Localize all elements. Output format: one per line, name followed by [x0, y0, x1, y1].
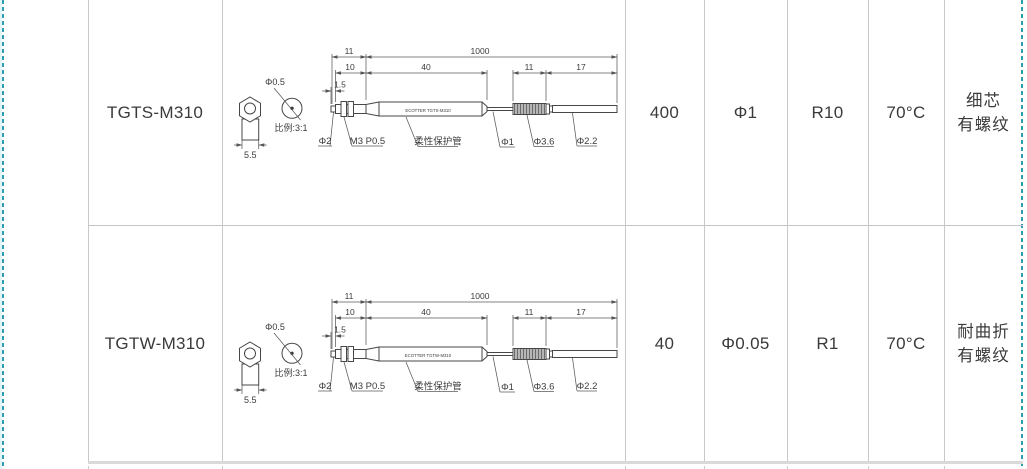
technical-drawing-tgts-m310: 11 1000 10 40 11 17 1.5 5.5 Φ0.5 比例:3:1 …: [222, 40, 625, 175]
svg-text:Φ3.6: Φ3.6: [534, 382, 555, 393]
svg-text:Φ2: Φ2: [319, 136, 332, 147]
svg-text:Φ1: Φ1: [501, 382, 514, 393]
svg-text:11: 11: [345, 291, 354, 301]
svg-text:11: 11: [525, 307, 534, 317]
svg-text:11: 11: [525, 62, 534, 72]
svg-text:11: 11: [345, 46, 354, 56]
svg-text:M3 P0.5: M3 P0.5: [350, 381, 385, 392]
spec-value: R1: [787, 225, 868, 462]
svg-text:17: 17: [576, 307, 586, 317]
spec-note-line: 有螺纹: [957, 344, 1010, 368]
spec-note-line: 细芯: [966, 89, 1001, 113]
svg-text:Φ2.2: Φ2.2: [577, 381, 598, 392]
svg-text:柔性保护管: 柔性保护管: [414, 381, 462, 393]
svg-text:5.5: 5.5: [244, 395, 257, 405]
model-name-tgts-m310: TGTS-M310: [88, 0, 222, 225]
spec-value: Φ1: [704, 0, 787, 225]
svg-text:40: 40: [421, 62, 431, 72]
spec-value: 70°C: [868, 225, 944, 462]
spec-value: 40: [625, 225, 704, 462]
svg-text:10: 10: [345, 62, 355, 72]
model-name-tgtw-m310: TGTW-M310: [88, 225, 222, 462]
svg-text:Φ0.5: Φ0.5: [265, 322, 285, 332]
spec-note-line: 耐曲折: [957, 320, 1010, 344]
svg-text:1.5: 1.5: [334, 80, 346, 90]
spec-note-line: 有螺纹: [957, 113, 1010, 137]
spec-value: 70°C: [868, 0, 944, 225]
spec-note: 耐曲折 有螺纹: [944, 225, 1023, 462]
svg-text:Φ3.6: Φ3.6: [534, 137, 555, 148]
svg-text:1000: 1000: [471, 46, 490, 56]
svg-text:17: 17: [576, 62, 586, 72]
spec-value: R10: [787, 0, 868, 225]
catalog-page: TGTS-M310 11 1000 10 40 11 17 1.5 5.5 Φ0…: [0, 0, 1027, 469]
left-page-guide-dashed: [2, 0, 4, 469]
svg-text:5.5: 5.5: [244, 150, 257, 160]
spec-value: 400: [625, 0, 704, 225]
svg-text:Φ1: Φ1: [501, 137, 514, 148]
svg-text:M3 P0.5: M3 P0.5: [350, 136, 385, 147]
svg-text:40: 40: [421, 307, 431, 317]
svg-text:1000: 1000: [471, 291, 490, 301]
svg-text:比例:3:1: 比例:3:1: [274, 367, 307, 378]
svg-text:1.5: 1.5: [334, 325, 346, 335]
svg-text:ECOTTER TGTW-M310: ECOTTER TGTW-M310: [405, 353, 452, 358]
svg-text:Φ0.5: Φ0.5: [265, 77, 285, 87]
svg-text:Φ2.2: Φ2.2: [577, 136, 598, 147]
svg-text:柔性保护管: 柔性保护管: [414, 136, 462, 148]
svg-text:10: 10: [345, 307, 355, 317]
technical-drawing-tgtw-m310: 11 1000 10 40 11 17 1.5 5.5 Φ0.5 比例:3:1 …: [222, 285, 625, 420]
spec-value: Φ0.05: [704, 225, 787, 462]
svg-text:Φ2: Φ2: [319, 381, 332, 392]
spec-note: 细芯 有螺纹: [944, 0, 1023, 225]
svg-text:比例:3:1: 比例:3:1: [274, 122, 307, 133]
svg-text:ECOTTER TGTS-M310: ECOTTER TGTS-M310: [405, 108, 451, 113]
